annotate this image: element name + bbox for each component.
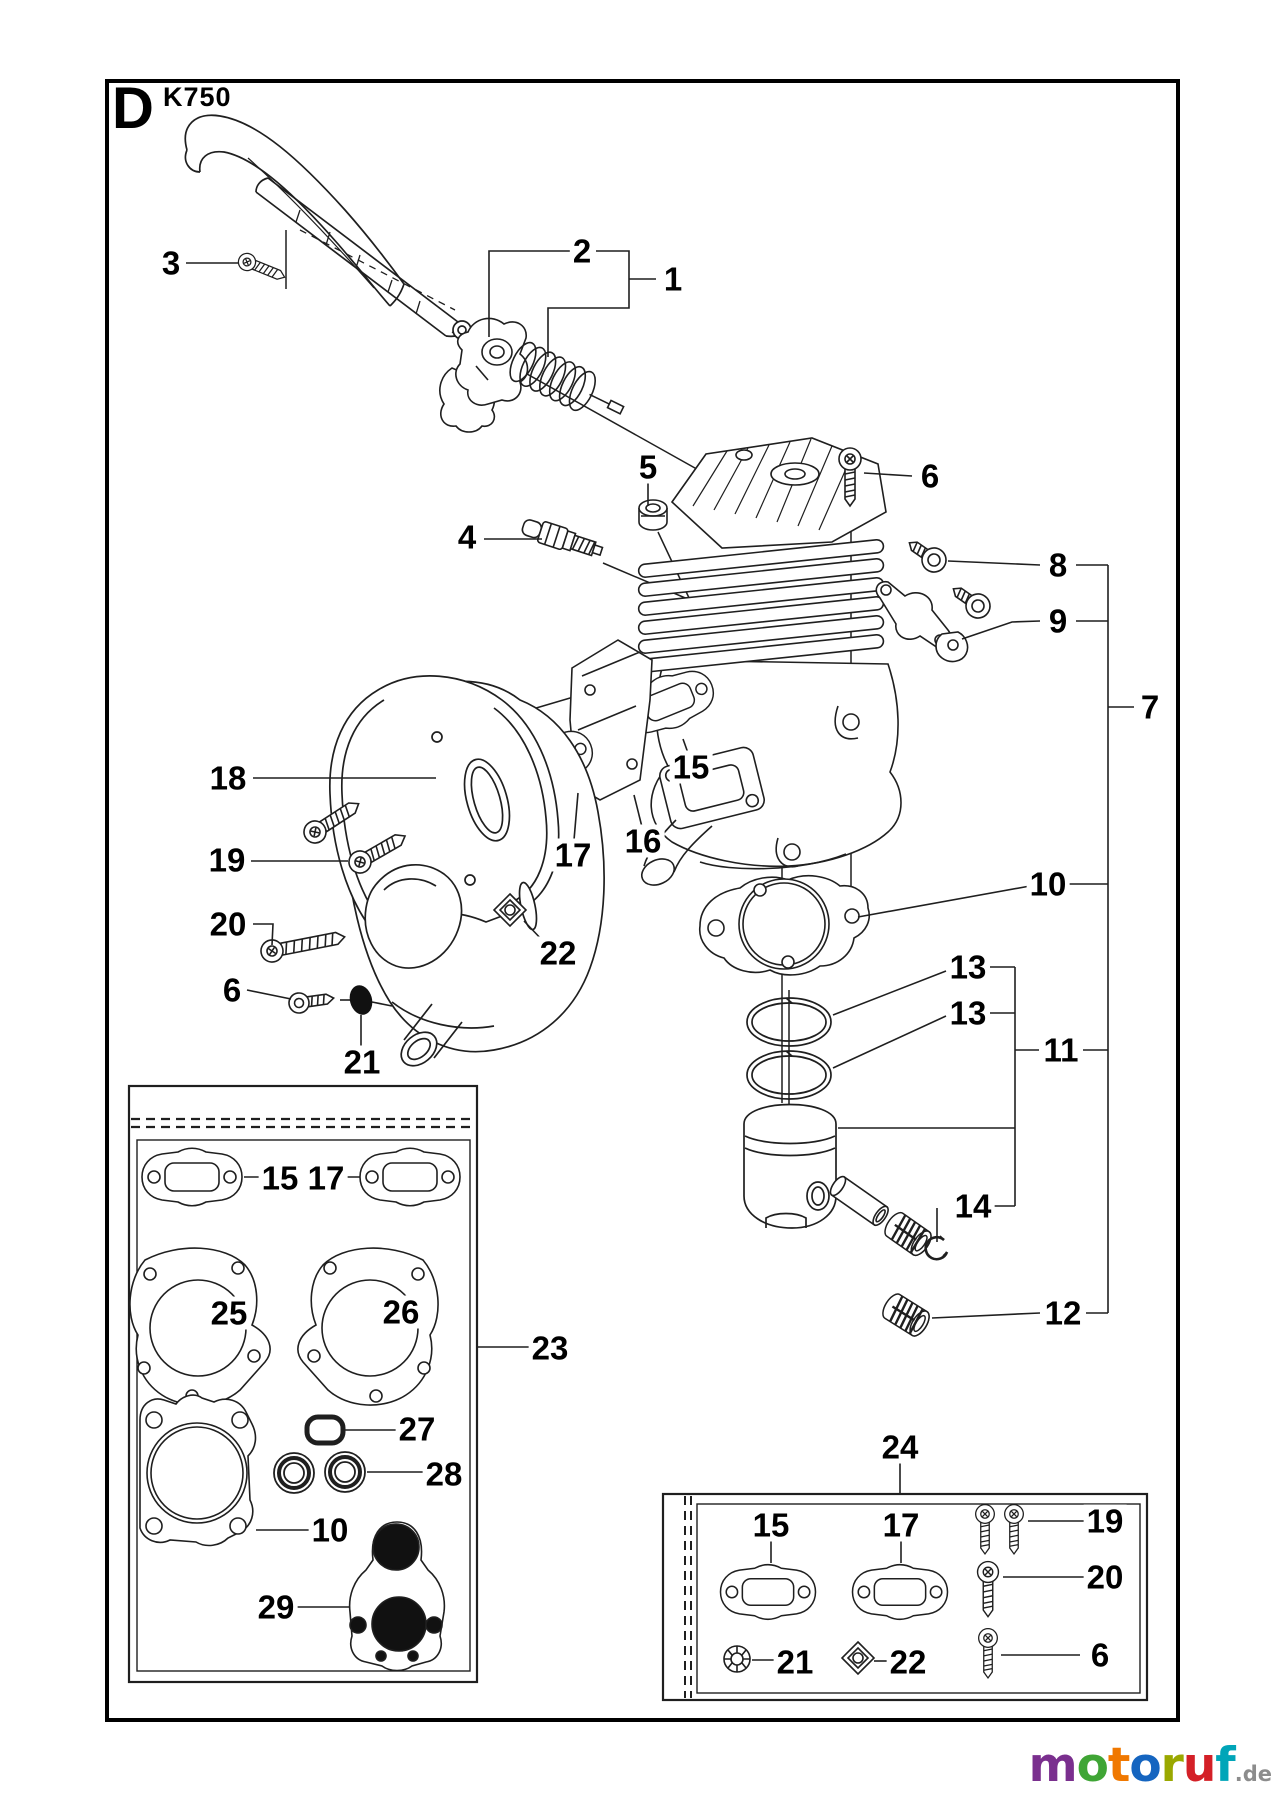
plug-5 [639, 500, 667, 530]
part-callout-5: 5 [636, 451, 660, 484]
part-callout-27: 27 [396, 1413, 439, 1446]
watermark-letter: u [1183, 1738, 1215, 1793]
part-callout-13: 13 [947, 951, 990, 984]
part-callout-6: 6 [220, 974, 244, 1007]
parts-diagram-page: D K750 321546897151617181920621221013131… [0, 0, 1284, 1800]
part-callout-22: 22 [887, 1646, 930, 1679]
part-callout-4: 4 [455, 521, 479, 554]
o-ring-21 [346, 983, 375, 1018]
part-callout-15: 15 [259, 1162, 302, 1195]
part-callout-25: 25 [208, 1297, 251, 1330]
part-callout-21: 21 [341, 1046, 384, 1079]
part-callout-23: 23 [529, 1332, 572, 1365]
model-code: K750 [163, 84, 232, 111]
part-callout-10: 10 [309, 1514, 352, 1547]
muffler [330, 676, 604, 1073]
watermark-logo[interactable]: motoruf.de [1029, 1742, 1272, 1789]
needle-bearing-12 [879, 1291, 933, 1339]
part-callout-16: 16 [622, 825, 665, 858]
part-callout-2: 2 [570, 235, 594, 268]
gasket-10-main [700, 876, 869, 975]
valve-spring-1 [505, 339, 631, 429]
part-callout-17: 17 [880, 1509, 923, 1542]
watermark-letter: o [1077, 1738, 1108, 1793]
watermark-tld: .de [1235, 1762, 1272, 1786]
part-callout-20: 20 [207, 908, 250, 941]
part-callout-3: 3 [159, 247, 183, 280]
part-callout-14: 14 [952, 1190, 995, 1223]
part-callout-15: 15 [750, 1509, 793, 1542]
watermark-letter: o [1129, 1738, 1160, 1793]
watermark-letter: r [1161, 1738, 1183, 1793]
part-callout-20: 20 [1084, 1561, 1127, 1594]
part-callout-12: 12 [1042, 1297, 1085, 1330]
part-callout-21: 21 [774, 1646, 817, 1679]
part-callout-29: 29 [255, 1591, 298, 1624]
part-callout-10: 10 [1027, 868, 1070, 901]
watermark-letters: motoruf [1029, 1738, 1235, 1793]
part-callout-6: 6 [1088, 1639, 1112, 1672]
part-callout-24: 24 [879, 1431, 922, 1464]
part-callout-9: 9 [1046, 605, 1070, 638]
watermark-letter: t [1108, 1738, 1129, 1793]
piston-11 [744, 1105, 836, 1229]
part-callout-7: 7 [1138, 691, 1162, 724]
cutter-arm [256, 178, 482, 352]
drawing-frame [107, 81, 1178, 1720]
part-callout-15: 15 [670, 751, 713, 784]
handle-tube [185, 115, 404, 306]
part-callout-28: 28 [423, 1458, 466, 1491]
gasket-kit-box-23 [129, 1086, 477, 1682]
part-callout-17: 17 [552, 839, 595, 872]
part-callout-11: 11 [1041, 1034, 1082, 1067]
part-callout-18: 18 [207, 762, 250, 795]
cylinder-7 [638, 438, 901, 890]
part-callout-19: 19 [1084, 1505, 1127, 1538]
watermark-letter: m [1029, 1738, 1077, 1793]
part-callout-1: 1 [661, 263, 685, 296]
piston-pin [828, 1174, 891, 1228]
watermark-letter: f [1215, 1738, 1234, 1793]
part-callout-17: 17 [305, 1162, 348, 1195]
screw-3 [236, 251, 288, 285]
part-callout-26: 26 [380, 1296, 423, 1329]
part-callout-13: 13 [947, 997, 990, 1030]
part-callout-22: 22 [537, 937, 580, 970]
part-callout-19: 19 [206, 844, 249, 877]
sheet-letter: D [112, 80, 154, 138]
bracket-screws-8-9 [876, 533, 994, 662]
part-callout-6: 6 [918, 460, 942, 493]
part-callout-8: 8 [1046, 549, 1070, 582]
